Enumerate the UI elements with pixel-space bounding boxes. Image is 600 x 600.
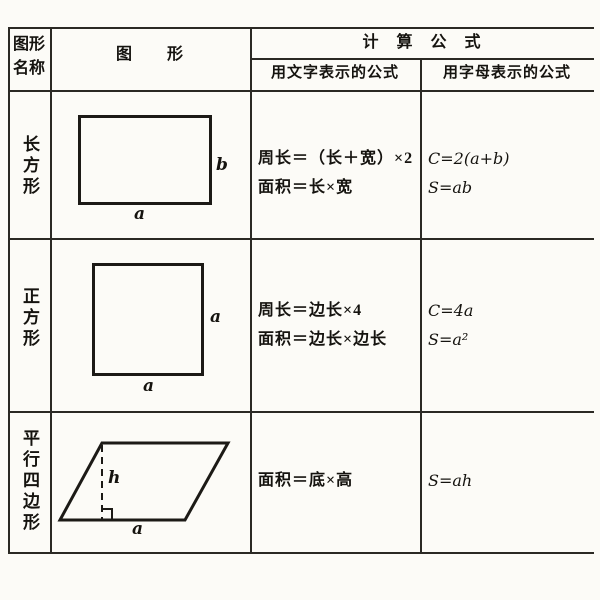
parallelogram-figure: [50, 433, 240, 538]
header-shape-name: 图形名称: [11, 33, 47, 81]
parallelogram-outline: [60, 443, 228, 520]
square-area-letter: S=a²: [428, 325, 473, 354]
row1-bottom-border: [8, 238, 594, 240]
table-top-border: [8, 27, 594, 29]
rectangle-figure: [78, 115, 212, 205]
header-letter-formula: 用字母表示的公式: [420, 64, 594, 84]
rectangle-perimeter-letter: C=2(a+b): [428, 144, 510, 173]
word-letter-divider: [420, 58, 422, 554]
rectangle-base-label: a: [134, 204, 145, 224]
header-formula-group: 计 算 公 式: [250, 33, 594, 54]
square-base-label: a: [143, 376, 154, 396]
header-bottom-border: [8, 90, 594, 92]
rectangle-area-word: 面积＝长×宽: [258, 173, 413, 202]
parallelogram-height-label: h: [108, 468, 120, 488]
parallelogram-area-word: 面积＝底×高: [258, 466, 353, 495]
rectangle-letter-formulas: C=2(a+b) S=ab: [428, 144, 510, 202]
parallelogram-area-letter: S=ah: [428, 466, 472, 495]
row2-bottom-border: [8, 411, 594, 413]
table-left-border: [8, 27, 10, 554]
square-perimeter-letter: C=4a: [428, 296, 473, 325]
figure-formula-divider: [250, 27, 252, 554]
header-word-formula: 用文字表示的公式: [250, 64, 420, 84]
row-name-parallelogram: 平行四边形: [19, 429, 39, 534]
parallelogram-letter-formulas: S=ah: [428, 466, 472, 495]
square-side-label: a: [210, 307, 221, 327]
rectangle-word-formulas: 周长＝（长＋宽）×2 面积＝长×宽: [258, 144, 413, 202]
parallelogram-base-label: a: [132, 519, 143, 539]
square-letter-formulas: C=4a S=a²: [428, 296, 473, 354]
right-angle-mark: [102, 509, 112, 519]
parallelogram-word-formulas: 面积＝底×高: [258, 466, 353, 495]
rectangle-area-letter: S=ab: [428, 173, 510, 202]
square-perimeter-word: 周长＝边长×4: [258, 296, 387, 325]
rectangle-side-label: b: [216, 155, 228, 175]
rectangle-perimeter-word: 周长＝（长＋宽）×2: [258, 144, 413, 173]
square-figure: [92, 263, 204, 376]
header-split-line: [250, 58, 594, 60]
table-bottom-border: [8, 552, 594, 554]
row-name-rectangle: 长方形: [19, 135, 39, 198]
scanned-textbook-table-page: 图形名称 图 形 计 算 公 式 用文字表示的公式 用字母表示的公式 长方形 b…: [0, 0, 600, 600]
header-figure: 图 形: [50, 45, 250, 66]
square-word-formulas: 周长＝边长×4 面积＝边长×边长: [258, 296, 387, 354]
square-area-word: 面积＝边长×边长: [258, 325, 387, 354]
row-name-square: 正方形: [19, 287, 39, 350]
